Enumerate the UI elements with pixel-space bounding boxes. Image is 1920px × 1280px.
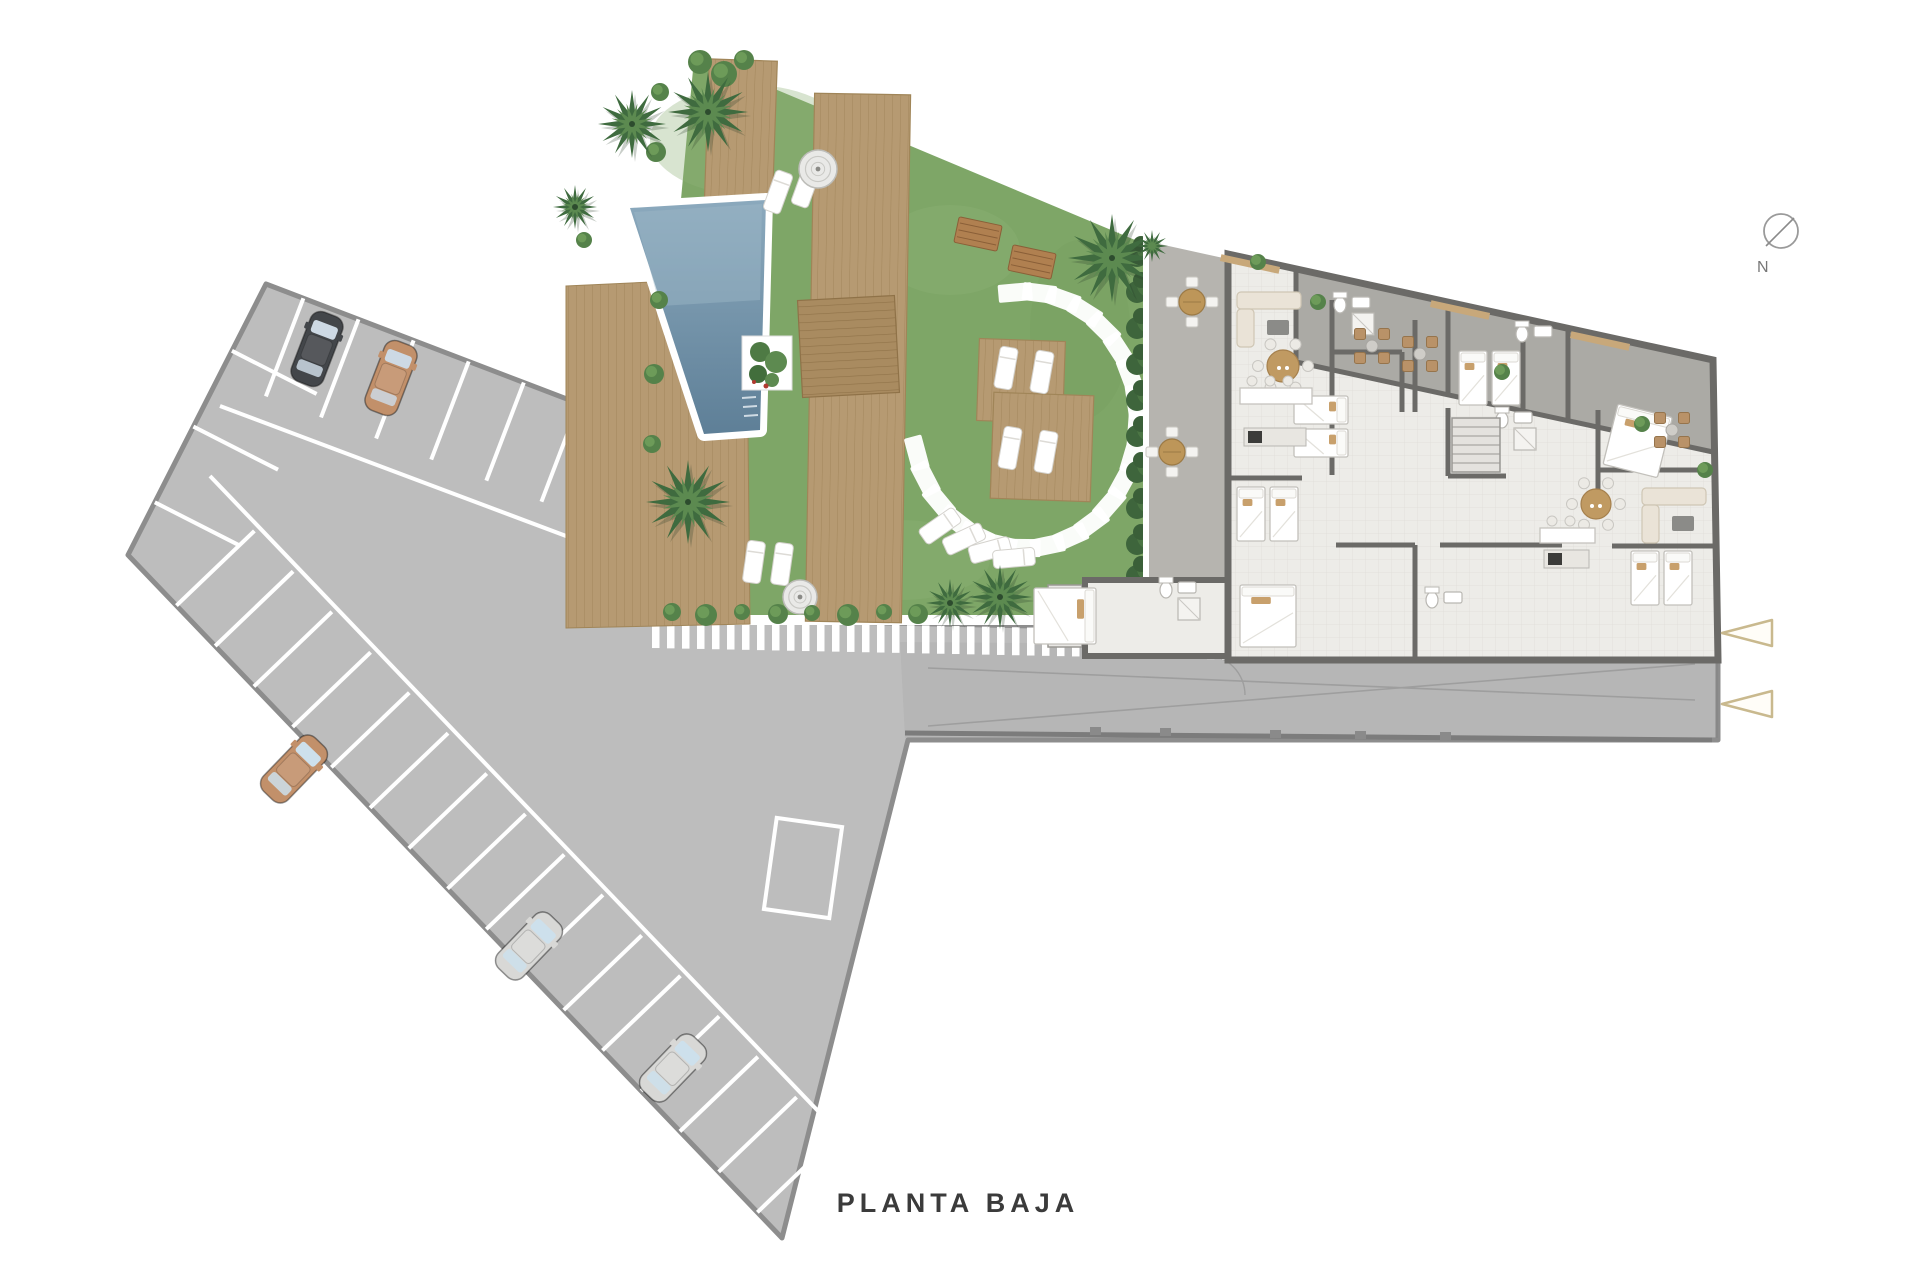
shrub-icon [651,83,669,101]
outdoor-shower-icon [799,150,837,188]
stripe [742,622,750,650]
shrub-icon [734,50,754,70]
shrub-icon [768,604,788,624]
shrub-icon [908,604,928,624]
shrub-icon [695,604,717,626]
stripe [787,623,795,651]
shrub-icon [734,604,750,620]
shrub-icon [837,604,859,626]
shrub-icon [804,605,820,621]
palm-tree-icon [553,185,600,233]
annex-room [1085,580,1228,656]
stripe [967,626,975,654]
entrance-arrow-icon [1722,691,1772,717]
wood-deck [798,296,900,398]
stripe [817,623,825,651]
terrace-shrub-icon [1634,416,1650,432]
shrub-icon [688,50,712,74]
stripe [757,622,765,650]
terrace-shrub-icon [1494,364,1510,380]
shrub-icon [650,291,668,309]
shrub-icon [663,603,681,621]
shrub-icon [876,604,892,620]
stripe [862,624,870,652]
stripe [1012,627,1020,655]
stripe [727,622,735,650]
plan-title: PLANTA BAJA [837,1188,1080,1218]
stripe [952,626,960,654]
shrub-icon [576,232,592,248]
stripe [892,625,900,653]
double-bed [1240,585,1296,647]
entrance-arrows [1722,620,1772,717]
stripe [712,621,720,649]
terrace-shrub-icon [1697,462,1713,478]
sun-lounger [992,547,1035,569]
floor-plan-canvas: N PLANTA BAJA [0,0,1920,1280]
stripe [937,626,945,654]
shrub-icon [644,364,664,384]
terrace-shrub-icon [1310,294,1326,310]
stripe [832,624,840,652]
shrub-icon [643,435,661,453]
stripe [847,624,855,652]
stripe [772,622,780,650]
planter-box [742,336,792,390]
entrance-arrow-icon [1722,620,1772,646]
north-label: N [1757,259,1770,276]
stripe [877,625,885,653]
stripe [997,627,1005,655]
stripe [922,625,930,653]
garden-area [553,48,1161,633]
staircase [1452,418,1500,472]
double-bed [1034,588,1096,644]
stripe [907,625,915,653]
compass-icon: N [1757,214,1798,276]
stripe [802,623,810,651]
stripe [982,627,990,655]
terrace-shrub-icon [1250,254,1266,270]
